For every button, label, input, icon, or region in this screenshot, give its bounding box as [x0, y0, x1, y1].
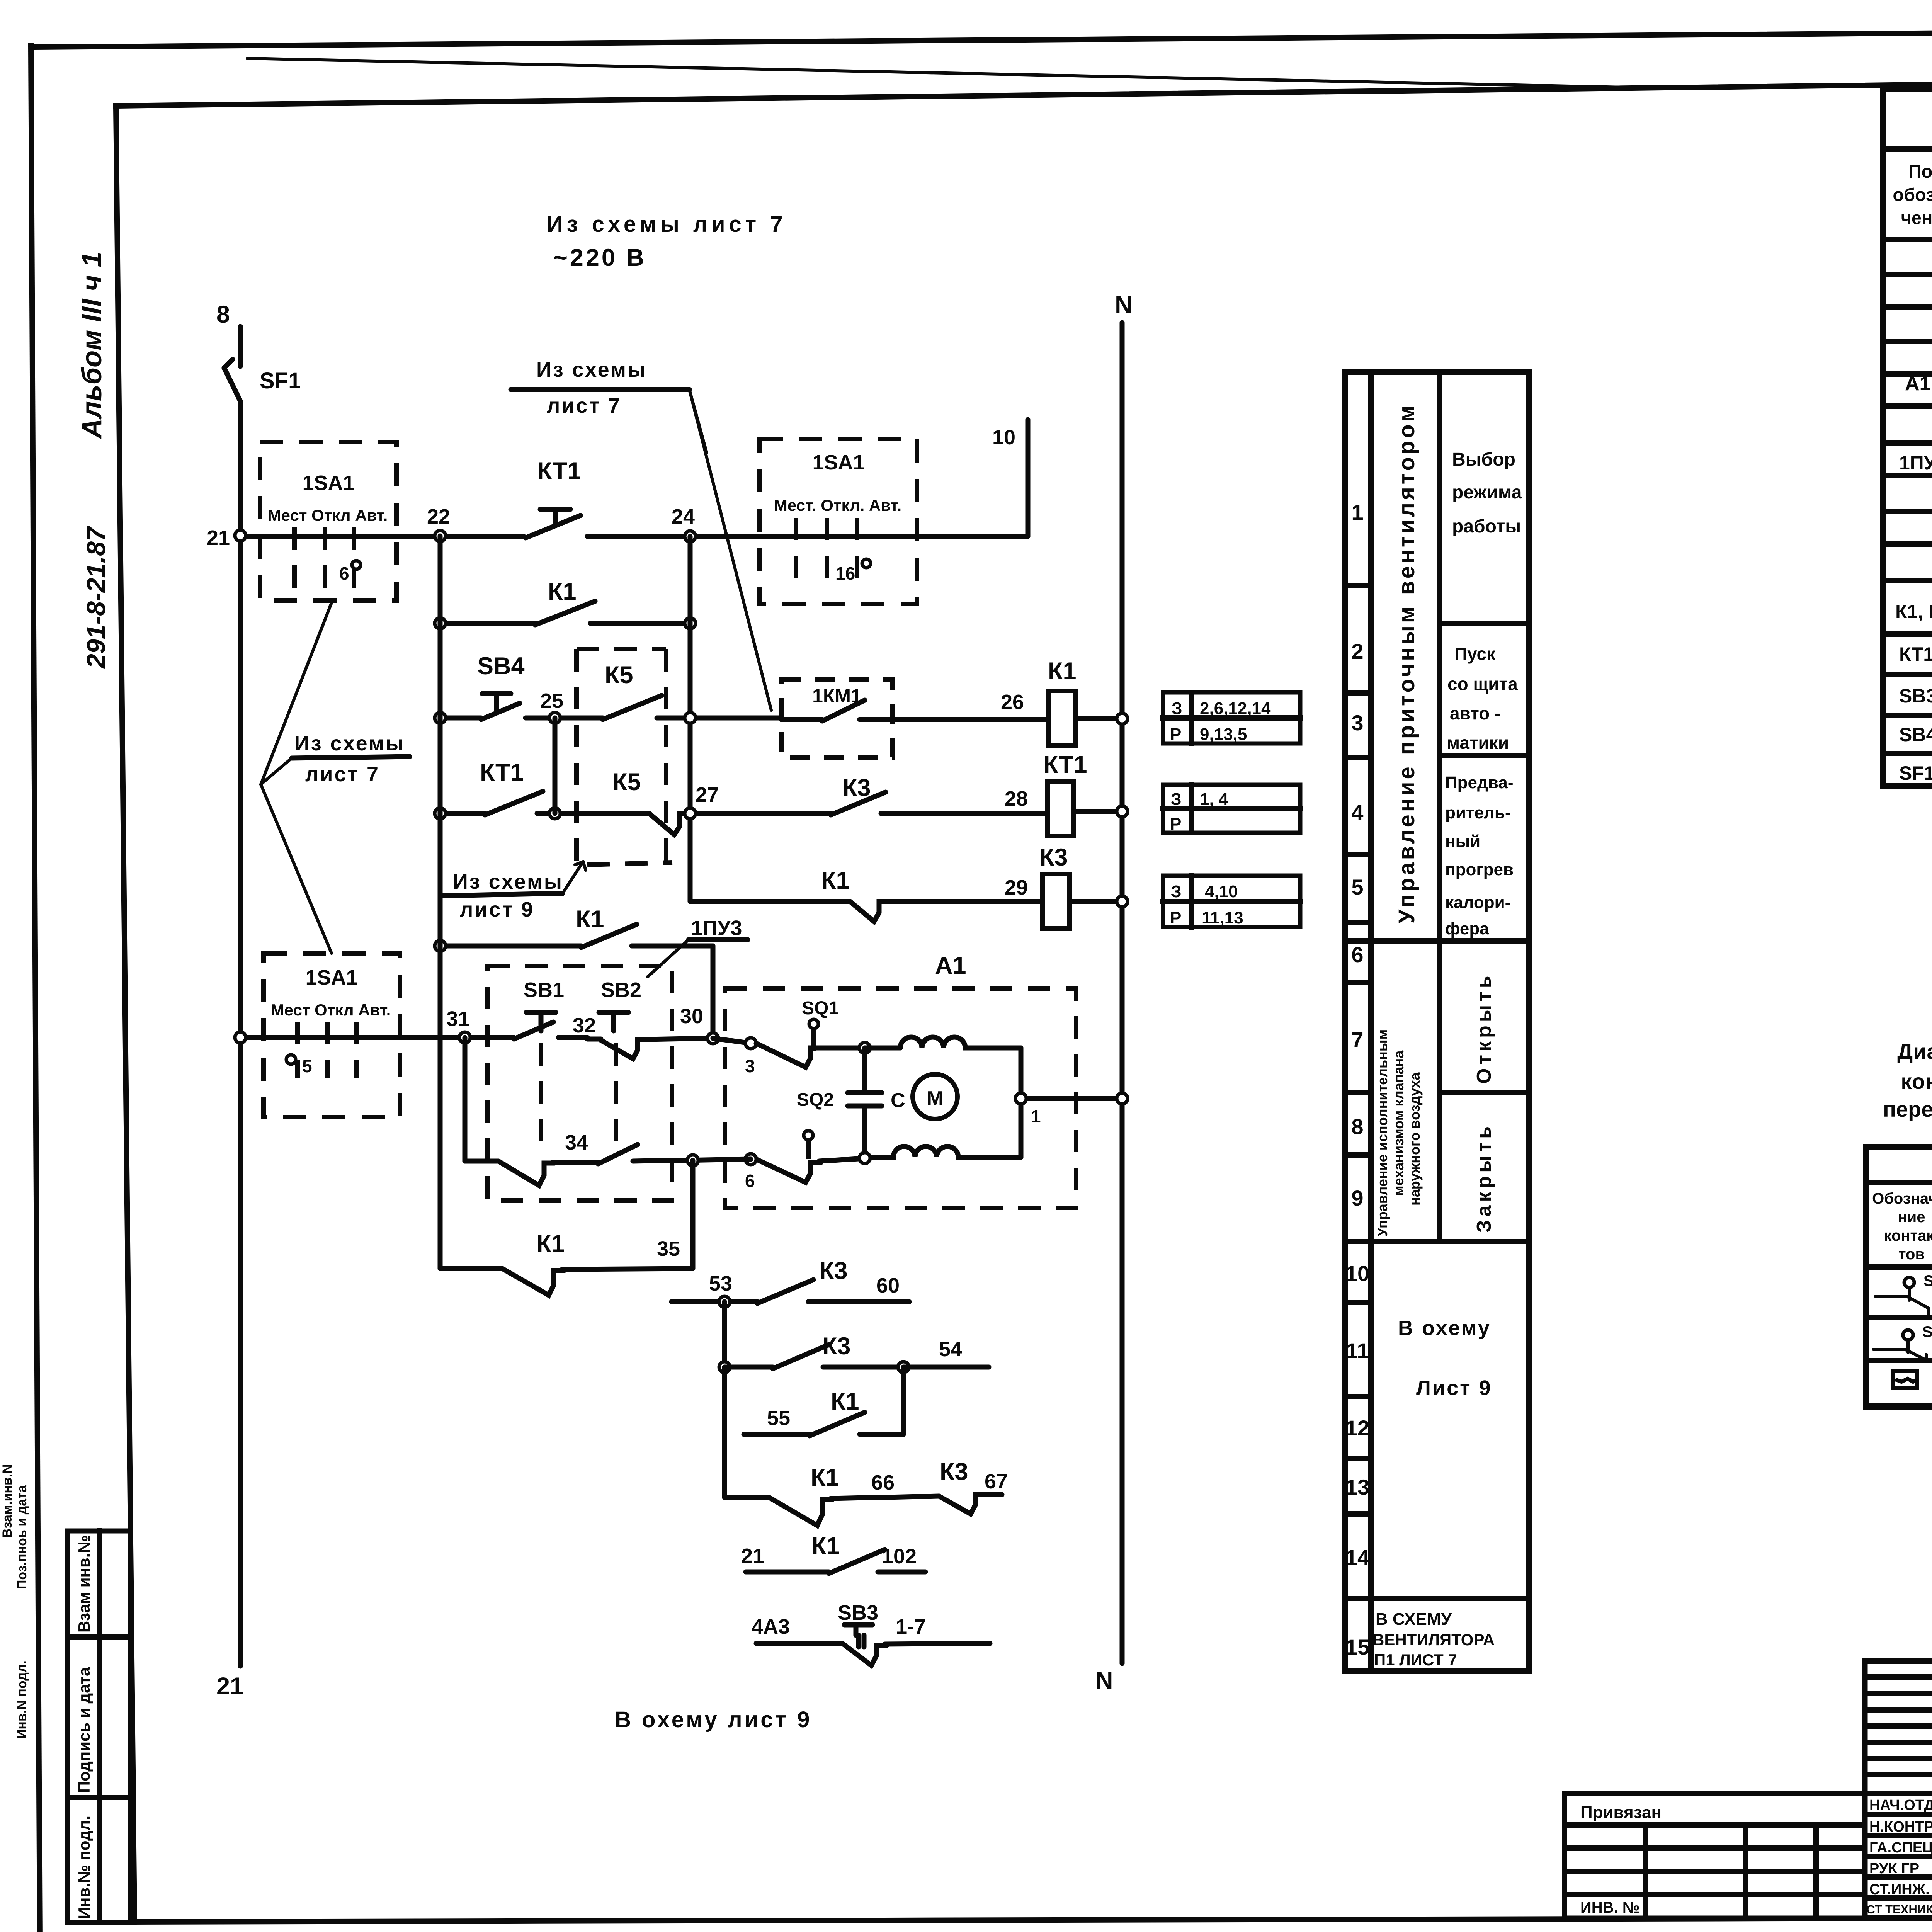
- svg-text:Р: Р: [1170, 815, 1181, 833]
- svg-text:29: 29: [1005, 876, 1028, 899]
- svg-text:34: 34: [565, 1131, 588, 1154]
- svg-text:60: 60: [876, 1274, 900, 1297]
- svg-text:7: 7: [1351, 1027, 1363, 1052]
- svg-text:Взам.инв.N: Взам.инв.N: [0, 1464, 15, 1538]
- svg-text:К1: К1: [1048, 658, 1077, 685]
- svg-text:Из схемы: Из схемы: [294, 732, 405, 755]
- svg-text:SB4: SB4: [1899, 724, 1932, 745]
- svg-text:КТ1: КТ1: [480, 759, 524, 786]
- svg-text:лист 7: лист 7: [547, 394, 621, 417]
- svg-text:N: N: [1115, 291, 1133, 318]
- svg-text:Поз.: Поз.: [1908, 161, 1932, 182]
- svg-text:1SA1: 1SA1: [302, 471, 354, 495]
- svg-text:Из схемы лист 7: Из схемы лист 7: [547, 212, 787, 237]
- svg-text:Пуск: Пуск: [1454, 644, 1496, 664]
- svg-text:З: З: [1171, 882, 1182, 901]
- svg-text:13: 13: [1345, 1475, 1369, 1499]
- svg-text:SQ2: SQ2: [1922, 1323, 1932, 1340]
- svg-text:6: 6: [339, 563, 349, 583]
- svg-text:тов: тов: [1898, 1246, 1925, 1263]
- svg-text:К1: К1: [811, 1532, 840, 1560]
- svg-text:фера: фера: [1445, 919, 1489, 938]
- svg-text:SF1: SF1: [1899, 762, 1932, 784]
- svg-text:Из схемы: Из схемы: [536, 358, 647, 381]
- svg-text:Предва-: Предва-: [1445, 773, 1514, 792]
- svg-text:28: 28: [1005, 787, 1028, 810]
- svg-text:SB1: SB1: [524, 978, 564, 1002]
- svg-text:К3: К3: [1039, 844, 1068, 871]
- svg-text:1ПУ3: 1ПУ3: [1899, 452, 1932, 474]
- svg-text:53: 53: [709, 1272, 732, 1295]
- svg-text:21: 21: [216, 1673, 243, 1700]
- svg-text:102: 102: [882, 1545, 917, 1568]
- svg-text:ГА.СПЕЦ.: ГА.СПЕЦ.: [1869, 1840, 1932, 1856]
- svg-text:контак-: контак-: [1884, 1227, 1932, 1244]
- svg-text:лист 9: лист 9: [460, 898, 534, 921]
- svg-text:26: 26: [1001, 690, 1024, 714]
- svg-text:К3: К3: [842, 774, 871, 801]
- svg-text:35: 35: [657, 1237, 680, 1260]
- svg-text:25: 25: [540, 689, 563, 713]
- svg-text:З: З: [1171, 790, 1182, 809]
- svg-text:Мест Откл Авт.: Мест Откл Авт.: [271, 1001, 391, 1019]
- svg-text:~220 В: ~220 В: [553, 244, 646, 271]
- svg-text:К1, К3: К1, К3: [1895, 601, 1932, 622]
- svg-text:Инв.N подл.: Инв.N подл.: [15, 1660, 29, 1739]
- svg-text:РУК ГР: РУК ГР: [1869, 1861, 1919, 1877]
- svg-text:переключателей клапана: переключателей клапана: [1883, 1097, 1932, 1121]
- svg-text:лист 7: лист 7: [305, 763, 380, 786]
- svg-text:SB3: SB3: [1899, 685, 1932, 707]
- svg-text:В охему: В охему: [1398, 1316, 1491, 1340]
- svg-text:SB4: SB4: [477, 653, 525, 680]
- svg-text:21: 21: [741, 1544, 764, 1568]
- svg-text:механизмом клапана: механизмом клапана: [1391, 1050, 1406, 1196]
- svg-text:8: 8: [216, 301, 230, 328]
- svg-text:3: 3: [1351, 711, 1363, 735]
- svg-text:ВЕНТИЛЯТОРА: ВЕНТИЛЯТОРА: [1372, 1631, 1495, 1649]
- svg-text:66: 66: [871, 1471, 895, 1494]
- svg-text:калори-: калори-: [1445, 893, 1510, 912]
- svg-text:со щита: со щита: [1447, 674, 1518, 694]
- svg-text:контактов конечных: контактов конечных: [1901, 1069, 1932, 1094]
- svg-text:1SA1: 1SA1: [305, 966, 357, 989]
- svg-text:SF1: SF1: [260, 368, 301, 393]
- svg-text:11: 11: [1346, 1338, 1369, 1363]
- svg-text:31: 31: [446, 1007, 469, 1031]
- svg-text:Инв.№ подл.: Инв.№ подл.: [75, 1816, 93, 1919]
- svg-text:Привязан: Привязан: [1580, 1803, 1662, 1822]
- svg-text:А1: А1: [1905, 372, 1930, 395]
- svg-text:Подпись и дата: Подпись и дата: [75, 1667, 93, 1793]
- svg-text:К1: К1: [576, 906, 604, 933]
- svg-text:1-7: 1-7: [896, 1615, 926, 1638]
- svg-text:Из схемы: Из схемы: [453, 870, 563, 893]
- svg-text:С: С: [891, 1089, 905, 1112]
- svg-text:11,13: 11,13: [1202, 908, 1243, 927]
- svg-text:СТ.ИНЖ.: СТ.ИНЖ.: [1869, 1881, 1930, 1898]
- svg-text:СТ ТЕХНИК: СТ ТЕХНИК: [1866, 1903, 1932, 1916]
- svg-text:В охему лист 9: В охему лист 9: [615, 1707, 812, 1732]
- svg-text:Лист 9: Лист 9: [1416, 1376, 1492, 1400]
- svg-text:32: 32: [573, 1014, 596, 1037]
- svg-text:5: 5: [302, 1056, 312, 1076]
- svg-text:А1: А1: [935, 952, 966, 979]
- svg-text:12: 12: [1345, 1416, 1369, 1440]
- svg-text:67: 67: [985, 1470, 1008, 1493]
- svg-text:обозна-: обозна-: [1893, 184, 1932, 205]
- svg-text:КТ1: КТ1: [537, 457, 581, 485]
- svg-text:8: 8: [1351, 1114, 1363, 1139]
- svg-text:П1 ЛИСТ 7: П1 ЛИСТ 7: [1374, 1651, 1457, 1669]
- svg-text:К1: К1: [536, 1230, 565, 1257]
- svg-text:Альбом III ч 1: Альбом III ч 1: [77, 252, 107, 439]
- svg-text:1: 1: [1031, 1106, 1041, 1126]
- svg-text:Взам инв.№: Взам инв.№: [75, 1535, 93, 1633]
- svg-text:работы: работы: [1452, 516, 1521, 537]
- svg-text:К1: К1: [811, 1464, 839, 1491]
- svg-text:10: 10: [992, 426, 1015, 449]
- svg-text:К1: К1: [831, 1388, 859, 1415]
- svg-text:291-8-21.87: 291-8-21.87: [82, 526, 111, 669]
- svg-text:55: 55: [767, 1406, 790, 1430]
- svg-text:N: N: [1095, 1667, 1113, 1694]
- svg-text:ние: ние: [1898, 1209, 1925, 1226]
- svg-text:Мест. Откл. Авт.: Мест. Откл. Авт.: [774, 496, 901, 514]
- svg-text:SQ1: SQ1: [1923, 1272, 1932, 1289]
- svg-text:6: 6: [745, 1171, 755, 1191]
- svg-text:10: 10: [1345, 1261, 1369, 1286]
- svg-text:Диаграмма замыкания: Диаграмма замыкания: [1897, 1039, 1932, 1063]
- svg-text:КТ1: КТ1: [1043, 751, 1087, 778]
- svg-text:4А3: 4А3: [752, 1615, 790, 1638]
- svg-text:Обозначе-: Обозначе-: [1872, 1190, 1932, 1207]
- svg-text:ный: ный: [1445, 832, 1480, 851]
- svg-text:15: 15: [1345, 1635, 1369, 1659]
- svg-text:ритель-: ритель-: [1445, 803, 1511, 822]
- svg-text:К5: К5: [612, 769, 641, 796]
- svg-text:SB3: SB3: [838, 1601, 878, 1624]
- svg-text:прогрев: прогрев: [1445, 860, 1514, 879]
- svg-text:4,10: 4,10: [1205, 882, 1238, 901]
- svg-text:режима: режима: [1452, 482, 1522, 503]
- svg-text:З: З: [1172, 699, 1182, 718]
- svg-text:авто -: авто -: [1450, 703, 1500, 723]
- svg-text:М: М: [927, 1087, 943, 1110]
- svg-text:SQ1: SQ1: [802, 998, 839, 1019]
- svg-text:1ПУ3: 1ПУ3: [691, 917, 742, 940]
- svg-text:1: 1: [1351, 500, 1363, 524]
- svg-text:SB2: SB2: [601, 978, 641, 1002]
- svg-text:54: 54: [939, 1338, 962, 1361]
- svg-text:Р: Р: [1170, 725, 1181, 744]
- svg-text:Управление исполнительным: Управление исполнительным: [1374, 1029, 1390, 1236]
- svg-text:чение: чение: [1901, 207, 1932, 228]
- svg-text:наружного воздуха: наружного воздуха: [1407, 1072, 1423, 1206]
- svg-text:4: 4: [1351, 800, 1363, 825]
- svg-text:30: 30: [680, 1005, 703, 1028]
- svg-text:1, 4: 1, 4: [1200, 790, 1228, 809]
- svg-text:Выбор: Выбор: [1452, 449, 1515, 470]
- svg-text:В СХЕМУ: В СХЕМУ: [1376, 1610, 1452, 1629]
- svg-text:К5: К5: [605, 662, 633, 689]
- svg-text:Открыть: Открыть: [1473, 972, 1495, 1084]
- svg-text:16: 16: [835, 563, 855, 583]
- svg-text:К1: К1: [821, 867, 850, 894]
- svg-text:24: 24: [672, 505, 695, 528]
- svg-text:К3: К3: [940, 1458, 968, 1485]
- svg-text:27: 27: [696, 783, 719, 806]
- svg-text:НАЧ.ОТД: НАЧ.ОТД: [1869, 1797, 1932, 1813]
- svg-text:К3: К3: [819, 1257, 848, 1284]
- svg-text:22: 22: [427, 505, 450, 528]
- svg-text:Мест Откл Авт.: Мест Откл Авт.: [268, 506, 388, 524]
- svg-text:Закрыть: Закрыть: [1473, 1123, 1495, 1233]
- svg-text:2,6,12,14: 2,6,12,14: [1200, 699, 1271, 718]
- svg-text:ИНВ. №: ИНВ. №: [1580, 1899, 1639, 1916]
- svg-text:2: 2: [1351, 639, 1363, 663]
- svg-text:3: 3: [745, 1056, 755, 1076]
- svg-text:матики: матики: [1447, 733, 1509, 753]
- svg-text:К1: К1: [548, 578, 577, 605]
- svg-text:Поз.пноь и дата: Поз.пноь и дата: [15, 1485, 29, 1589]
- svg-text:9,13,5: 9,13,5: [1200, 725, 1247, 744]
- svg-text:1SA1: 1SA1: [812, 451, 864, 474]
- svg-text:14: 14: [1345, 1545, 1369, 1570]
- svg-text:21: 21: [207, 526, 230, 549]
- svg-text:6: 6: [1351, 942, 1363, 967]
- svg-text:Р: Р: [1170, 908, 1181, 927]
- svg-text:SQ2: SQ2: [797, 1090, 834, 1110]
- svg-text:Управление приточным вентилято: Управление приточным вентилятором: [1394, 403, 1419, 923]
- svg-text:5: 5: [1351, 875, 1363, 899]
- svg-text:Н.КОНТР.: Н.КОНТР.: [1869, 1819, 1932, 1835]
- svg-text:КТ1: КТ1: [1899, 643, 1932, 665]
- svg-text:9: 9: [1351, 1186, 1363, 1210]
